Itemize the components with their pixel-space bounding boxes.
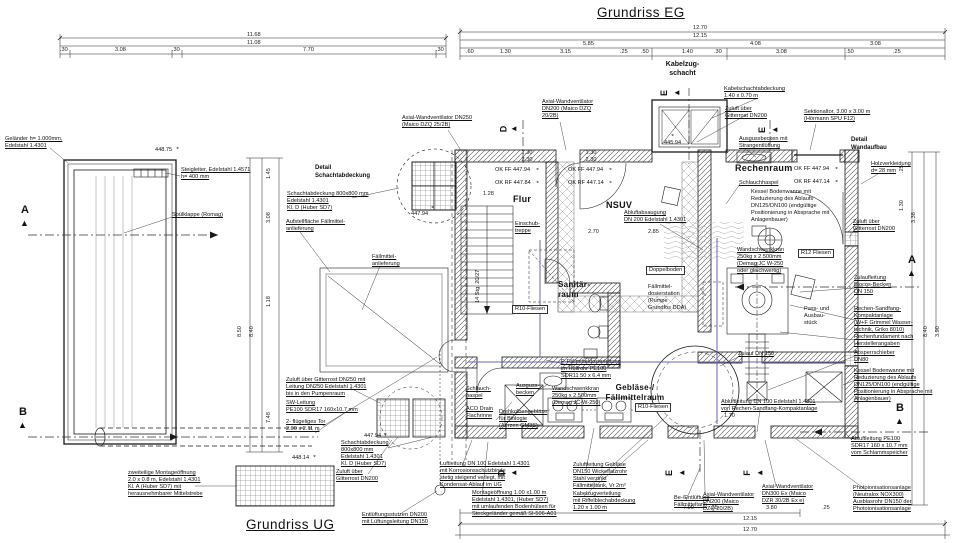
dim: 3.08 [776,49,787,56]
view-arrow-f-bottom-icon: ◄ [756,469,764,477]
label-abluftleitung-pe100: Abluftleitung PE100 SDR17 160 x 10.7 mm … [851,436,917,457]
dim-bottom-3: 12.70 [743,527,757,534]
title-grundriss-ug: Grundriss UG [246,517,335,534]
label-aufstellflaeche: Aufstellfläche Fällmittel- anlieferung [286,219,364,233]
label-einschubtreppe: Einschub- treppe [515,221,540,235]
room-rechenraum: Rechenraum [735,163,793,174]
dim-bottom-1: 7.90 [683,505,694,512]
dim: .30 [436,47,444,54]
label-drehkolbengeblaese: Drehkolbengebläse für Biologie (Aerzen G… [499,409,557,430]
level-marker-icon: ◒ [835,166,838,171]
level-447-94-detail: 447.94 [411,211,428,218]
label-zulauf-dn150: Zulauf DN 150 [738,351,774,358]
dim: 12.15 [693,33,707,40]
level-marker-icon: ◒ [609,167,612,172]
label-p-dosierleitung: P-Fällmitteldosierleitung im Hüllrohr PE… [561,359,641,380]
label-ausgussbecken-top: Ausgussbecken mit Strangentlüftung [739,136,799,150]
level-marker-icon: ◒ [609,180,612,185]
dim: 1.18 [266,296,273,307]
level-nsuv-ff: OK FF 447.94 [568,167,603,174]
level-rechen-rf: OK RF 447.14 [794,179,830,186]
dim-bottom-2: 12.15 [743,516,757,523]
dim-top-right-total: 12.70 [693,25,707,32]
label-zuluft-dn200-ug: Zuluft über Gitterrost DN200 [336,469,378,483]
dim: 5.85 [583,41,594,48]
view-marker-f-bottom: F [742,470,752,476]
dim: 1.45 [266,168,273,179]
label-wandschwenkkran-geblaese: Wandschwenkkran 250kg x 2.500mm (Demag J… [552,386,610,407]
label-kabelzugverteilung: Kabelzugverteilung mit Riffelblechabdeck… [573,491,647,512]
label-vent-dn250: Axial-Wandventilator DN250 (Maico DZQ 25… [402,115,486,129]
label-zulaufleitung-biocos: Zulaufleitung Biocos-Becken DN 150 [854,275,900,296]
section-marker-b-right: B [896,402,904,414]
label-kabelzugschacht: Kabelzug- schacht [655,61,710,79]
dim: 2.85 [648,229,659,236]
dim: 3.15 [560,49,571,56]
label-absperrschieber: Absperrschieber DN80 [854,350,902,364]
level-447-94-ug: 447.94 [364,433,381,440]
workbench-wood [664,222,744,260]
label-rechenfundament: Rechenfundament nach Herstellerangaben [854,334,924,348]
room-flur: Flur [513,194,531,205]
dim: 3.08 [115,47,126,54]
level-flur-rf: OK RF 447.84 [495,180,531,187]
section-arrow-b-left-icon: ▲ [18,421,27,430]
dim: 2.70 [588,229,599,236]
label-doppelboden: Doppelboden [646,266,685,275]
kabelzugschacht-box [652,88,727,164]
level-marker-icon: ◒ [176,146,179,151]
label-pass-ausbaustueck: Pass- und Ausbau- stück [804,306,836,327]
dim: 7.70 [303,47,314,54]
label-wandschwenkkran-rechenraum: Wandschwenkkran 250kg x 2.500mm (Demag J… [737,247,795,275]
label-luftleitung: Luftleitung DN 100 Edelstahl 1.4301 mit … [440,461,542,489]
level-marker-icon: ◒ [536,167,539,172]
dim: 1.30 [500,49,511,56]
title-grundriss-eg: Grundriss EG [597,5,685,22]
label-ausgussbecken-geblaese: Ausguss- becken [516,383,539,397]
view-arrow-e-mid-icon: ◄ [771,126,779,134]
dim-top-left-inner: 11.08 [247,40,261,47]
section-arrow-a-right-icon: ▲ [907,269,916,278]
label-stairs-count: 14 Stg. 20/27 [475,270,482,303]
label-entlueftungsstutzen: Entlüftungsstutzen DN200 mit Lüftungslei… [362,512,444,526]
dim: 8.40 [249,326,256,337]
dim: .60 [466,49,474,56]
view-arrow-e-bottom-icon: ◄ [678,469,686,477]
section-marker-a-right: A [908,254,916,266]
dim: 1.40 [682,49,693,56]
dim-left-total: 8.50 [237,326,244,337]
level-445-94: 445.94 [664,140,681,147]
ug-plan [64,149,471,506]
label-schachtabdeckung-ug: Schachtabdeckung 800x800 mm Edelstahl 1.… [341,440,403,468]
dim: 1.28 [483,191,494,198]
dim: 3.08 [870,41,881,48]
dim: 3.90 [935,326,942,337]
view-arrow-d-top-icon: ◄ [510,125,518,133]
label-zuluft-dn250: Zuluft über Gitterrost DN250 mit Leitung… [286,377,381,398]
label-detail-wandaufbau-title: Detail Wandaufbau [851,137,893,152]
label-r12-fliesen: R12 Fliesen [798,249,834,258]
label-photoionisationsanlage: Photoionisationsanlage (Neutralox NOX300… [853,485,929,513]
label-vent-dn300: Axial-Wandventilator DN300 Ex (Maico DZR… [762,484,822,505]
dim: 3.38 [911,212,918,223]
label-montageoeffnung-ug: zweiteilige Montageöffnung 2.0 x 0.8 m, … [128,470,220,498]
dim: 8.40 [923,326,930,337]
section-arrow-b-right-icon: ▲ [895,417,904,426]
label-vent-dn200-top: Axial-Wandventilator DN200 (Maico DZQ 20… [542,99,606,120]
label-zuluft-gitterrost-right: Zuluft über Gitterrost DN200 [853,219,895,233]
label-spuelklappe: Spülklappe (Romag) [172,212,223,219]
dim: 1.70 [724,413,735,420]
label-dosierstation: Fällmittel- dosierstation (Pumpe Grundfo… [648,284,694,312]
stairs [461,206,513,314]
dim-door-2: 1.30 2.30 [582,150,600,164]
drawing-sheet: Grundriss EG Grundriss UG A ▲ B ▲ A ▲ B … [0,0,965,543]
label-rechen-kompaktanlage: Rechen-Sandfang- Kompaktanlage (W+F Grim… [854,306,926,334]
label-kabelschachtabdeckung: Kabelschachtabdeckung 1.40 x 0.70 m [724,86,798,100]
view-arrow-e-shaft-icon: ◄ [673,89,681,97]
label-r10-fliesen-geblaese: R10-Fliesen [635,403,671,412]
level-marker-icon: ◒ [313,454,316,459]
label-detail-schachtabdeckung-text: Schachtabdeckung 800x800 mm Edelstahl 1.… [287,191,383,212]
dim: .30 [714,49,722,56]
label-abluftleitung-rechen: Abluftleitung DN 100 Edelstahl 1.4301 vo… [721,399,837,413]
section-marker-b-left: B [19,406,27,418]
label-sektionaltor: Sektionaltor, 3.00 x 3.00 m (Hörmann SPU… [804,109,884,123]
level-marker-icon: ◒ [384,432,387,437]
label-schlauchhaspel-geblaese: Schlauch- haspel [466,386,491,400]
level-448-75: 448.75 [155,147,172,154]
dim: .50 [846,49,854,56]
label-faellmittel-anlieferung: Fällmittel- anlieferung [372,254,400,268]
label-r10-fliesen-sanitaer: R10-Fliesen [512,305,548,314]
dim: .25 [620,49,628,56]
section-arrow-a-left-icon: ▲ [20,219,29,228]
label-sw-leitung: SW-Leitung PE100 SDR17 160x10.7 mm [286,400,371,414]
view-marker-d-top: D [498,126,508,133]
dim: .25 [822,505,830,512]
level-flur-ff: OK FF 447.94 [495,167,530,174]
label-abluftabsaugung: Abluftabsaugung DN 200 Edelstahl 1.4301 [624,210,690,224]
level-marker-icon: ◒ [835,179,838,184]
room-sanitaerraum: Sanitär- raum [558,280,590,300]
dim: 1.30 [899,200,906,211]
dim: 7.48 [266,412,273,423]
level-marker-icon: ◒ [536,180,539,185]
dim-door-1: 1.30 2.30 [518,150,536,164]
label-steigleiter: Steigleiter, Edelstahl 1.4571 h= 400 mm [181,167,250,181]
dim: 4.08 [750,41,761,48]
room-geblaeseraum: Gebläse-/ Fällmittelraum [600,383,670,403]
dim: .25 [893,49,901,56]
dim-top-left-total: 11.68 [247,32,261,39]
label-gelaender: Geländer h= 1.000mm, Edelstahl 1.4301 [5,136,71,150]
view-marker-e-bottom: E [664,470,674,476]
level-rechen-ff: OK FF 447.94 [794,166,829,173]
dim: .30 [60,47,68,54]
dim: 3.08 [266,212,273,223]
dim: .30 [172,47,180,54]
label-schlauchhaspel-rechenraum: Schlauchhaspel [739,180,779,187]
label-kessel-bodenwanne-1: Kessel Bodenwanne mit Reduzierung des Ab… [751,189,841,224]
section-marker-a-left: A [21,204,29,216]
label-aco-drain: ACO Drain Flachrinne [466,406,493,420]
label-detail-schachtabdeckung-title: Detail Schachtabdeckung [315,165,377,180]
level-marker-icon: ◒ [671,133,674,138]
level-nsuv-rf: OK RF 447.14 [568,180,604,187]
label-tor: 2- flügeliges Tor 2.00 x 2.11 m [286,419,325,433]
label-kessel-bodenwanne-2: Kessel Bodenwanne mit Reduzierung des Ab… [854,368,946,403]
level-448-14: 448.14 [292,455,309,462]
dim: .25 [710,505,718,512]
label-montageoeffnung-eg: Montageöffnung 1.00 x1.00 m Edelstahl 1.… [472,490,576,518]
dim: .50 [641,49,649,56]
label-faellmitteltank: Fällmitteltank, Vr 2m³ [573,483,626,490]
dim: 3.80 [766,505,777,512]
view-marker-e-mid: E [757,127,767,133]
view-marker-e-shaft: E [659,90,669,96]
label-zuluft-gitterrost-top: Zuluft über Gitterrost DN200 [725,106,767,120]
level-marker-icon: ◒ [431,205,434,210]
dim: .25 [899,165,906,173]
label-zuluftleitung-geblaese: Zuluftleitung Gebläse DN150 Wickelfalzro… [573,462,639,483]
